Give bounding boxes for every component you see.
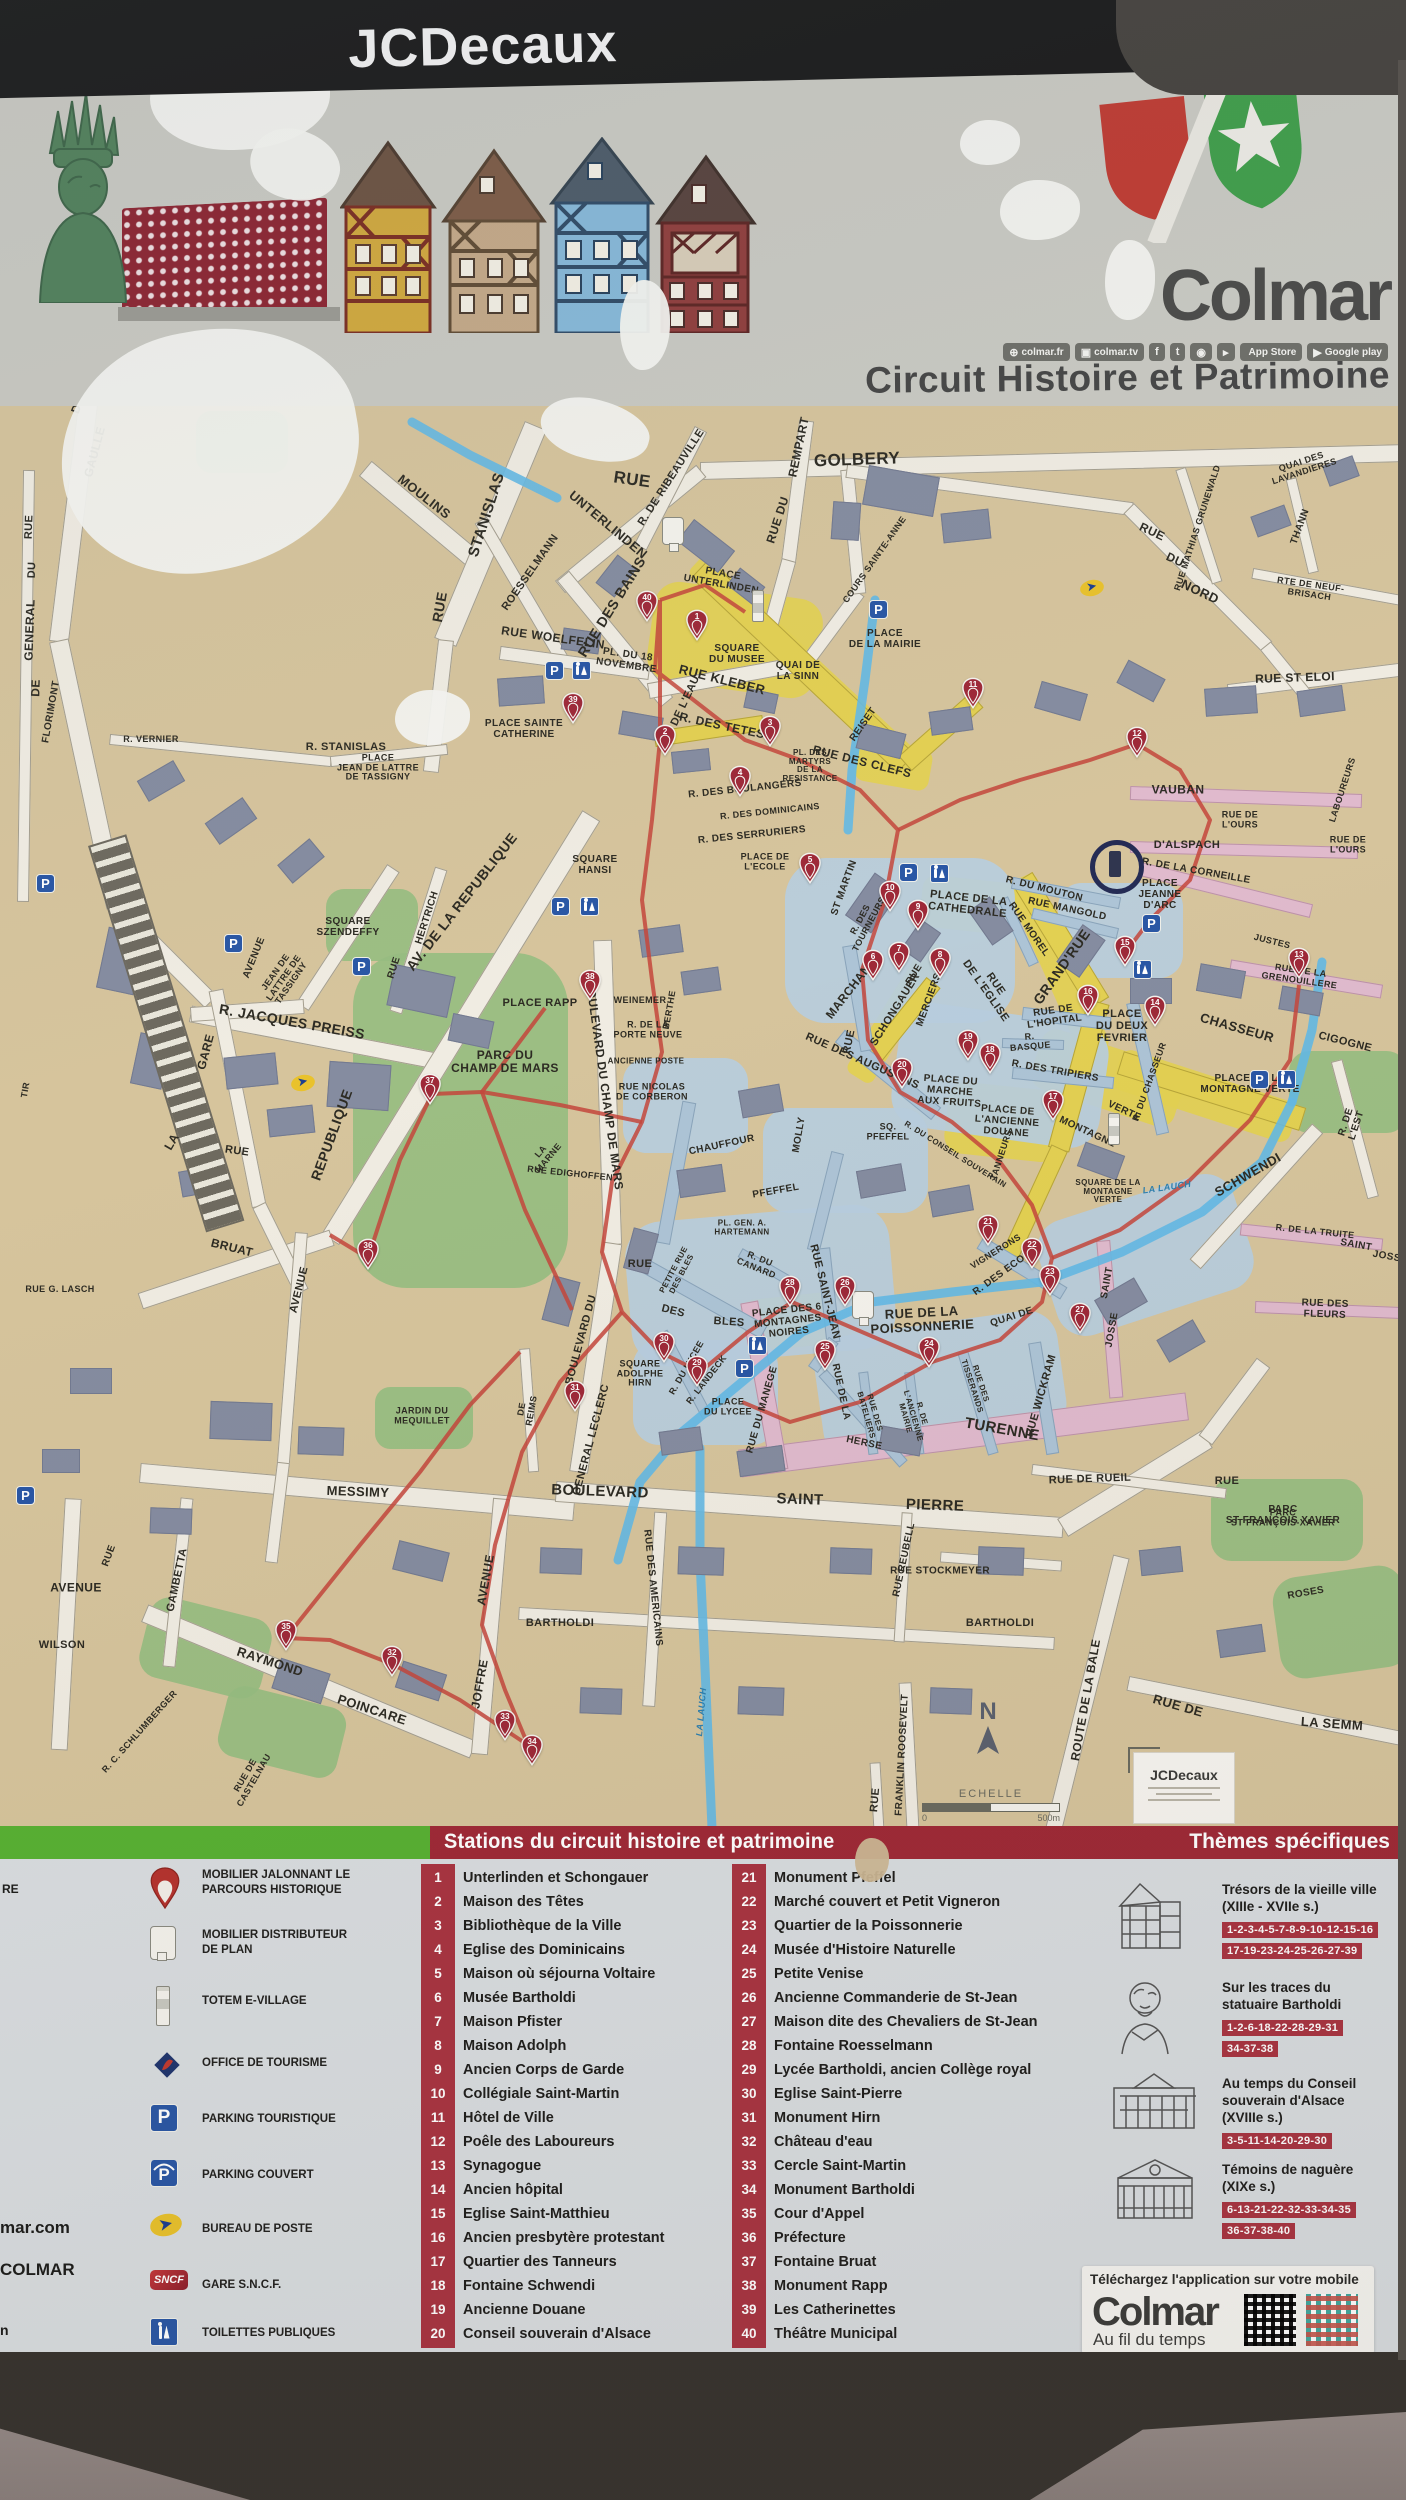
parking-icon: P [36, 874, 55, 893]
station-name: Eglise Saint-Matthieu [463, 2206, 610, 2222]
svg-text:14: 14 [1150, 998, 1160, 1007]
svg-text:10: 10 [885, 883, 895, 892]
street-label: PARC ST FRANÇOIS-XAVIER [1231, 1508, 1335, 1527]
legend-label: TOILETTES PUBLIQUES [202, 2326, 335, 2341]
street-label: PLACE DU LYCEE [704, 1397, 752, 1416]
building [929, 706, 974, 736]
street-label: D'ALSPACH [1154, 840, 1221, 852]
svg-text:6: 6 [871, 952, 876, 961]
twitter-icon: t [1176, 346, 1180, 358]
svg-text:31: 31 [570, 1383, 580, 1392]
station-name: Quartier de la Poissonnerie [774, 1918, 963, 1934]
station-number: 17 [421, 2254, 455, 2269]
building-base [118, 307, 340, 321]
street-label: RUE [224, 1144, 250, 1159]
station-marker-28: 28 [779, 1275, 801, 1307]
station-number: 9 [421, 2062, 455, 2077]
svg-text:19: 19 [963, 1032, 973, 1041]
street-label: FLORIMONT [41, 680, 63, 744]
building [1216, 1624, 1265, 1658]
building [678, 1546, 725, 1576]
stations-banner-title: Stations du circuit histoire et patrimoi… [444, 1830, 834, 1854]
station-number: 11 [421, 2110, 455, 2125]
tv-icon: ▣ [1081, 346, 1091, 359]
street-label: RUE [1215, 1476, 1239, 1488]
building [137, 760, 185, 802]
social-globe-icon: ⊕colmar.fr [1003, 343, 1069, 361]
station-number: 38 [732, 2278, 766, 2293]
station-number: 22 [732, 1894, 766, 1909]
building [277, 838, 325, 883]
old-town-sketch-icon [1110, 1876, 1188, 1961]
building [1077, 1142, 1125, 1181]
street-label: SQUARE SZENDEFFY [316, 917, 379, 939]
station-marker-2: 2 [654, 724, 676, 756]
tourism-office-icon [150, 2048, 184, 2087]
svg-text:40: 40 [642, 593, 652, 602]
svg-text:38: 38 [585, 972, 595, 981]
station-name: Les Catherinettes [774, 2302, 896, 2318]
svg-text:1: 1 [695, 612, 700, 621]
plan-dispenser-icon [150, 1926, 176, 1960]
station-name: Conseil souverain d'Alsace [463, 2326, 651, 2342]
station-marker-7: 7 [888, 941, 910, 973]
station-marker-6: 6 [862, 949, 884, 981]
building [831, 501, 862, 541]
station-name: Château d'eau [774, 2134, 873, 2150]
social-twitter-icon: t [1170, 343, 1186, 361]
street-label: WEINEMER [614, 996, 667, 1006]
street-label: PARC DU CHAMP DE MARS [451, 1049, 559, 1075]
station-marker-30: 30 [653, 1331, 675, 1363]
svg-text:27: 27 [1075, 1305, 1085, 1314]
station-number: 15 [421, 2206, 455, 2221]
theme-station-codes: 34-37-38 [1222, 2041, 1278, 2057]
building [42, 1449, 80, 1473]
svg-text:21: 21 [983, 1217, 993, 1226]
station-marker-32: 32 [381, 1645, 403, 1677]
svg-text:29: 29 [692, 1358, 702, 1367]
toilets-icon [748, 1336, 767, 1355]
station-name: Maison dite des Chevaliers de St-Jean [774, 2014, 1038, 2030]
legend-panel: Stations du circuit histoire et patrimoi… [0, 1826, 1406, 2352]
svg-text:9: 9 [916, 902, 921, 911]
theme-title: Au temps du Conseil souverain d'Alsace (… [1222, 2076, 1406, 2127]
station-number: 2 [421, 1894, 455, 1909]
svg-text:36: 36 [363, 1241, 373, 1250]
station-marker-4: 4 [729, 765, 751, 797]
station-number: 10 [421, 2086, 455, 2101]
svg-text:15: 15 [1120, 938, 1130, 947]
social-facebook-icon: f [1149, 343, 1165, 361]
street-label: LA SEMM [1300, 1715, 1363, 1733]
plan-dispenser-icon [662, 517, 684, 545]
station-name: Cercle Saint-Martin [774, 2158, 906, 2174]
station-marker-20: 20 [891, 1057, 913, 1089]
street-label: RUE NICOLAS DE CORBERON [616, 1082, 688, 1101]
street-label: RTE DE NEUF-BRISACH [1261, 574, 1359, 607]
station-name: Quartier des Tanneurs [463, 2254, 617, 2270]
street-label: RUE DE LA POISSONNERIE [869, 1303, 974, 1336]
street-label: PL. DES MARTYRS DE LA RESISTANCE [783, 749, 838, 784]
road-segment [1199, 1357, 1271, 1445]
street-label: PLACE JEAN DE LATTRE DE TASSIGNY [337, 753, 419, 782]
street-label: RUE [869, 1787, 883, 1812]
station-name: Ancien presbytère protestant [463, 2230, 664, 2246]
station-name: Maison Pfister [463, 2014, 562, 2030]
street-label: RUE ST ELOI [1255, 670, 1335, 686]
station-number: 25 [732, 1966, 766, 1981]
svg-text:30: 30 [659, 1334, 669, 1343]
street-label: MESSIMY [326, 1484, 389, 1500]
social-googleplay-icon: ▶Google play [1307, 343, 1388, 361]
station-number: 34 [732, 2182, 766, 2197]
station-number: 24 [732, 1942, 766, 1957]
edge-partial-text: RE [2, 1882, 19, 1896]
street-label: ROUTE DE LA BALE [1069, 1638, 1103, 1762]
station-marker-35: 35 [275, 1619, 297, 1651]
svg-text:4: 4 [738, 768, 743, 777]
station-marker-23: 23 [1039, 1264, 1061, 1296]
legend-label: GARE S.N.C.F. [202, 2278, 281, 2293]
station-number: 33 [732, 2158, 766, 2173]
theme-station-codes: 36-37-38-40 [1222, 2223, 1295, 2239]
street-label: DU [27, 561, 39, 578]
parking-icon: P [551, 897, 570, 916]
mobile-app-box: Téléchargez l'application sur votre mobi… [1082, 2266, 1374, 2354]
station-number: 14 [421, 2182, 455, 2197]
station-marker-25: 25 [814, 1339, 836, 1371]
station-name: Monument Rapp [774, 2278, 888, 2294]
parking-icon: P [16, 1486, 35, 1505]
station-number: 13 [421, 2158, 455, 2173]
street-label: RUE [612, 468, 651, 491]
station-name: Ancienne Commanderie de St-Jean [774, 1990, 1017, 2006]
building [542, 1275, 581, 1327]
svg-text:5: 5 [808, 855, 813, 864]
toilets-icon [1277, 1070, 1296, 1089]
building [671, 748, 711, 774]
station-name: Marché couvert et Petit Vigneron [774, 1894, 1000, 1910]
street-label: TIR [20, 1081, 32, 1098]
station-name: Fontaine Roesselmann [774, 2038, 933, 2054]
building [1139, 1546, 1183, 1576]
street-label: R. VERNIER [123, 735, 179, 745]
building [540, 1547, 583, 1574]
building [1034, 681, 1088, 721]
station-name: Préfecture [774, 2230, 846, 2246]
station-number: 4 [421, 1942, 455, 1957]
station-number: 20 [421, 2326, 455, 2341]
street-label: R. C. SCHLUMBERGER [101, 1689, 180, 1775]
svg-text:3: 3 [768, 718, 773, 727]
social-label: Google play [1325, 347, 1382, 358]
post-office-icon: ➤ [1079, 578, 1106, 599]
legend-label: MOBILIER JALONNANT LE PARCOURS HISTORIQU… [202, 1868, 350, 1898]
street-label: LABOUREURS [1328, 756, 1358, 823]
street-label: RUE [24, 515, 37, 540]
station-number: 21 [732, 1870, 766, 1885]
street-label: RUE DE L'OURS [1222, 810, 1258, 829]
road-segment [1127, 1675, 1406, 1746]
theme-station-codes: 1-2-3-4-5-7-8-9-10-12-15-16 [1222, 1922, 1378, 1938]
svg-text:26: 26 [840, 1278, 850, 1287]
svg-text:28: 28 [785, 1278, 795, 1287]
globe-icon: ⊕ [1009, 346, 1018, 359]
svg-text:11: 11 [969, 680, 978, 689]
station-marker-17: 17 [1042, 1089, 1064, 1121]
station-number: 30 [732, 2086, 766, 2101]
street-label: ANCIENNE POSTE [608, 1058, 685, 1067]
frame-right-edge [1398, 60, 1406, 2360]
svg-text:33: 33 [500, 1712, 510, 1721]
parking-icon: P [899, 863, 918, 882]
legend-label: PARKING TOURISTIQUE [202, 2112, 336, 2127]
stations-number-strip [421, 1864, 455, 2348]
parking-icon: P [352, 957, 371, 976]
compass-north-icon: N [975, 1698, 1001, 1761]
building [676, 1164, 725, 1198]
station-marker-21: 21 [977, 1214, 999, 1246]
svg-text:8: 8 [938, 950, 943, 959]
street-label: VAUBAN [1152, 784, 1205, 797]
banner-red-strip: Stations du circuit histoire et patrimoi… [430, 1826, 1406, 1859]
station-marker-9: 9 [907, 899, 929, 931]
building [1278, 986, 1324, 1017]
building [638, 924, 683, 958]
building [830, 1547, 873, 1574]
road-segment [50, 1498, 81, 1751]
themes-banner-title: Thèmes spécifiques [1189, 1830, 1390, 1854]
station-number: 1 [421, 1870, 455, 1885]
building [298, 1426, 345, 1456]
statue-of-liberty-illustration [20, 83, 140, 303]
building [209, 1401, 272, 1441]
parking-icon: P [150, 2104, 178, 2132]
street-label: DE [29, 679, 43, 697]
station-marker-27: 27 [1069, 1302, 1091, 1334]
street-label: PLACE DU DEUX FEVRIER [1096, 1009, 1148, 1045]
station-marker-33: 33 [494, 1709, 516, 1741]
street-label: PLACE SAINTE CATHERINE [485, 719, 563, 741]
building [70, 1368, 112, 1394]
theme-station-codes: 3-5-11-14-20-29-30 [1222, 2133, 1332, 2149]
map-scale: ECHELLE 0500m [922, 1788, 1060, 1823]
station-marker-16: 16 [1077, 984, 1099, 1016]
street-label: RUE G. LASCH [25, 1285, 94, 1295]
app-download-text: Téléchargez l'application sur votre mobi… [1090, 2272, 1366, 2287]
parking-icon: P [735, 1359, 754, 1378]
page-title: Circuit Histoire et Patrimoine [490, 354, 1390, 405]
street-label: PLACE DU MARCHE AUX FRUITS [917, 1074, 983, 1111]
station-name: Eglise Saint-Pierre [774, 2086, 902, 2102]
station-number: 7 [421, 2014, 455, 2029]
building [1296, 685, 1345, 717]
parking-icon: P [545, 661, 564, 680]
station-name: Synagogue [463, 2158, 541, 2174]
street-label: BARTHOLDI [966, 1618, 1034, 1630]
station-marker-31: 31 [564, 1380, 586, 1412]
toilets-icon [572, 661, 591, 680]
mansion-sketch-icon [1110, 2070, 1198, 2137]
station-number: 35 [732, 2206, 766, 2221]
street-label: R. DES SERRURIERS [697, 825, 806, 847]
station-name: Collégiale Saint-Martin [463, 2086, 619, 2102]
station-name: Musée d'Histoire Naturelle [774, 1942, 956, 1958]
post-office-icon: ➤ [150, 2214, 182, 2236]
parking-icon: P [224, 934, 243, 953]
colmar-crest [1085, 73, 1345, 243]
street-label: SAINT [776, 1491, 824, 1509]
legend-label: OFFICE DE TOURISME [202, 2056, 327, 2071]
street-label: SQUARE ADOLPHE HIRN [617, 1359, 664, 1388]
station-marker-8: 8 [929, 947, 951, 979]
station-name: Ancien hôpital [463, 2182, 563, 2198]
theme-title: Témoins de naguère (XIXe s.) [1222, 2162, 1406, 2196]
theme-station-codes: 1-2-6-18-22-28-29-31 [1222, 2020, 1343, 2036]
station-marker-11: 11 [962, 677, 984, 709]
station-number: 39 [732, 2302, 766, 2317]
station-name: Maison des Têtes [463, 1894, 584, 1910]
qr-code-icon [1244, 2294, 1296, 2346]
station-marker-37: 37 [419, 1073, 441, 1105]
station-number: 32 [732, 2134, 766, 2149]
road-segment [359, 461, 478, 566]
building [928, 1185, 974, 1218]
station-name: Musée Bartholdi [463, 1990, 576, 2006]
station-marker-3: 3 [759, 715, 781, 747]
sncf-icon: SNCF [150, 2270, 188, 2290]
svg-text:2: 2 [663, 727, 668, 736]
svg-text:16: 16 [1083, 987, 1093, 996]
station-name: Eglise des Dominicains [463, 1942, 625, 1958]
street-label: SQUARE DE LA MONTAGNE VERTE [1075, 1179, 1140, 1205]
station-name: Monument Bartholdi [774, 2182, 915, 2198]
station-marker-24: 24 [918, 1336, 940, 1368]
instagram-icon: ◉ [1196, 346, 1206, 359]
building [150, 1507, 193, 1534]
half-timbered-houses-illustration [340, 137, 770, 333]
street-label: GENERAL [22, 599, 37, 661]
street-label: RUE DE L'OURS [1330, 835, 1366, 854]
street-label: SQUARE DU MUSEE [709, 644, 765, 666]
building [738, 1686, 785, 1716]
street-label: LA LAUCH [695, 1687, 709, 1737]
social-instagram-icon: ◉ [1190, 343, 1212, 361]
street-label: AVENUE [242, 936, 268, 980]
station-number: 5 [421, 1966, 455, 1981]
svg-text:20: 20 [897, 1060, 907, 1069]
building [267, 1105, 316, 1138]
street-label: QUAI DE LA SINN [776, 661, 820, 683]
building [1204, 685, 1258, 717]
station-name: Fontaine Schwendi [463, 2278, 595, 2294]
street-label: PLACE JEANNE D'ARC [1139, 879, 1182, 911]
bartholdi-sketch-icon [1110, 1974, 1180, 2061]
station-name: Maison Adolph [463, 2038, 566, 2054]
street-label: PIERRE [906, 1497, 965, 1515]
station-number: 29 [732, 2062, 766, 2077]
station-number: 36 [732, 2230, 766, 2245]
svg-text:25: 25 [820, 1342, 830, 1351]
colmar-logo: Colmar [1160, 255, 1390, 337]
svg-text:24: 24 [924, 1339, 934, 1348]
station-name: Monument Hirn [774, 2110, 880, 2126]
totem-icon [1108, 1113, 1120, 1145]
street-label: GARE [195, 1033, 217, 1071]
app-subtitle: Au fil du temps [1093, 2330, 1205, 2350]
svg-text:12: 12 [1132, 729, 1142, 738]
you-are-here-icon [1090, 840, 1144, 894]
flashcode-icon [1306, 2294, 1358, 2346]
svg-text:22: 22 [1027, 1240, 1037, 1249]
building [205, 797, 258, 845]
station-marker-26: 26 [834, 1275, 856, 1307]
building [223, 1052, 278, 1089]
banner-green-strip [0, 1826, 430, 1859]
station-name: Hôtel de Ville [463, 2110, 554, 2126]
station-marker-39: 39 [562, 692, 584, 724]
post-office-icon: ➤ [290, 1073, 317, 1094]
street-label: BLES [713, 1316, 745, 1330]
svg-text:7: 7 [897, 944, 902, 953]
street-label: GOLBERY [814, 449, 901, 470]
theme-title: Trésors de la vieille ville (XIIIe - XVI… [1222, 1882, 1406, 1916]
circuit-marker-icon [150, 1866, 180, 1915]
station-name: Lycée Bartholdi, ancien Collège royal [774, 2062, 1031, 2078]
street-label: BRUAT [210, 1237, 255, 1260]
street-label: SQUARE HANSI [572, 855, 617, 877]
station-marker-18: 18 [979, 1042, 1001, 1074]
googleplay-icon: ▶ [1313, 346, 1321, 359]
theme-title: Sur les traces du statuaire Bartholdi [1222, 1980, 1406, 2014]
station-marker-14: 14 [1144, 995, 1166, 1027]
street-label: R. DES DOMINICAINS [720, 802, 821, 822]
station-number: 16 [421, 2230, 455, 2245]
building [1156, 1319, 1205, 1363]
facebook-icon: f [1155, 346, 1159, 358]
svg-text:35: 35 [281, 1622, 291, 1631]
parking-icon: P [1142, 914, 1161, 933]
station-marker-13: 13 [1288, 947, 1310, 979]
street-label: PLACE DE L'ECOLE [741, 852, 790, 871]
svg-text:39: 39 [568, 695, 578, 704]
station-number: 40 [732, 2326, 766, 2341]
theme-station-codes: 6-13-21-22-32-33-34-35 [1222, 2202, 1356, 2218]
station-number: 3 [421, 1918, 455, 1933]
street-label: AVENUE [50, 1582, 102, 1595]
museum-building-illustration [122, 198, 327, 321]
street-label: BOULEVARD [551, 1482, 649, 1502]
station-number: 37 [732, 2254, 766, 2269]
station-marker-40: 40 [636, 590, 658, 622]
legend-label: TOTEM E-VILLAGE [202, 1994, 307, 2009]
street-label: WILSON [39, 1640, 85, 1652]
building [1250, 505, 1291, 538]
station-marker-15: 15 [1114, 935, 1136, 967]
station-marker-19: 19 [957, 1029, 979, 1061]
street-label: PLACE DE LA MAIRIE [849, 629, 921, 651]
toilets-icon [930, 864, 949, 883]
station-marker-12: 12 [1126, 726, 1148, 758]
street-label: CHASSEUR [1198, 1011, 1275, 1045]
station-number: 18 [421, 2278, 455, 2293]
street-label: JARDIN DU MEQUILLET [394, 1406, 450, 1425]
street-label: JUSTES [1253, 933, 1292, 951]
building [659, 1426, 704, 1456]
building [681, 966, 722, 995]
station-number: 26 [732, 1990, 766, 2005]
